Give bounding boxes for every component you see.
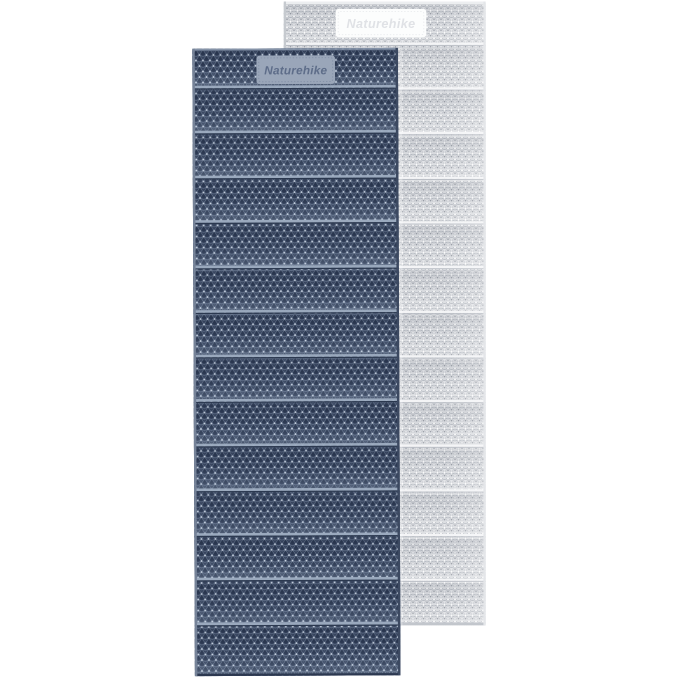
svg-text:Naturehike: Naturehike [264, 63, 327, 77]
svg-text:Naturehike: Naturehike [346, 17, 415, 31]
